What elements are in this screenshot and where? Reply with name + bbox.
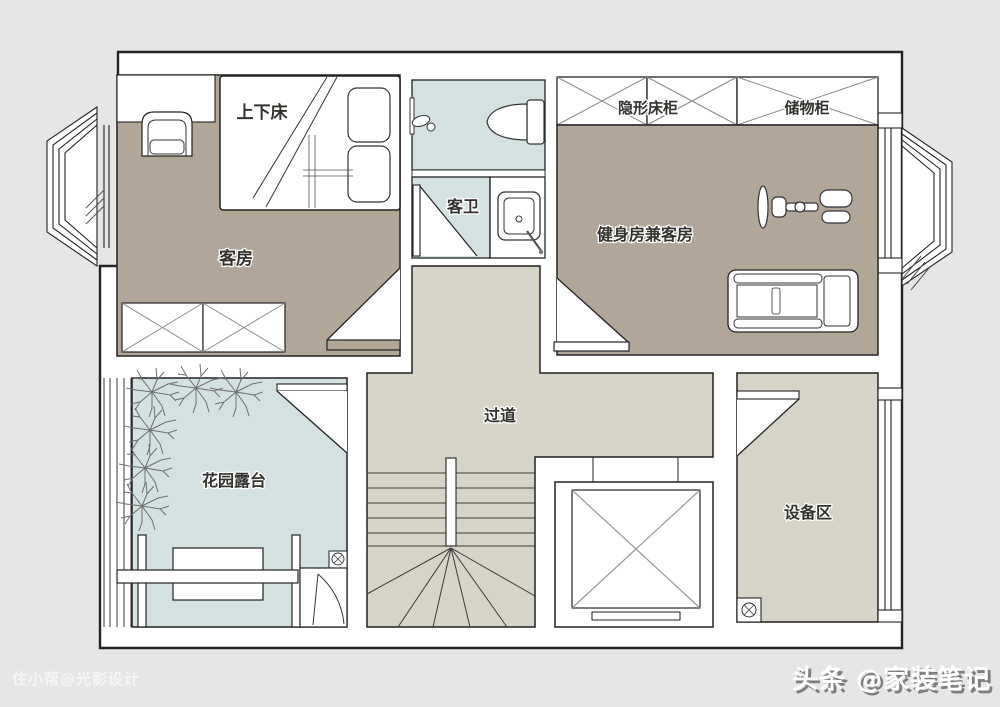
floor-plan-svg: 上下床 客房 客卫 [0,0,1000,707]
guest-room-cabinets [122,303,285,352]
watermark-designer: 住小帮@光影设计 [12,668,140,689]
terrace-drain [329,551,347,568]
floor-plan-image: 上下床 客房 客卫 [0,0,1000,707]
label-guest-room: 客房 [218,248,253,269]
bathroom-threshold [412,170,545,177]
room-terrace: 花园露台 [104,364,347,627]
label-garden-terrace: 花园露台 [202,471,266,490]
room-guest: 上下床 客房 [117,75,400,356]
pillow [348,88,390,142]
label-hidden-bed-cabinet: 隐形床柜 [618,99,678,117]
watermark-publisher: 头条 @家装笔记 [792,659,991,696]
room-bathroom: 客卫 [410,80,545,258]
label-bunk-bed: 上下床 [237,102,289,123]
label-equipment-area: 设备区 [784,503,832,522]
label-corridor: 过道 [484,406,516,425]
room-gym: 隐形床柜 储物柜 健身房兼客房 [554,77,878,355]
armchair [142,112,192,156]
terrace-door-bottom [300,568,347,627]
floor-drain [737,598,761,622]
gym-cabinets [557,77,878,125]
stair-handrail [446,458,456,546]
elevator-door [592,612,680,620]
label-storage-cabinet: 储物柜 [784,99,829,117]
label-guest-bathroom: 客卫 [447,197,479,216]
room-equipment: 设备区 [737,373,878,622]
label-gym-guest-room: 健身房兼客房 [597,225,693,244]
pillow [348,146,390,202]
elevator-shaft [555,457,713,627]
treadmill [728,270,858,332]
bunk-bed [220,76,400,210]
